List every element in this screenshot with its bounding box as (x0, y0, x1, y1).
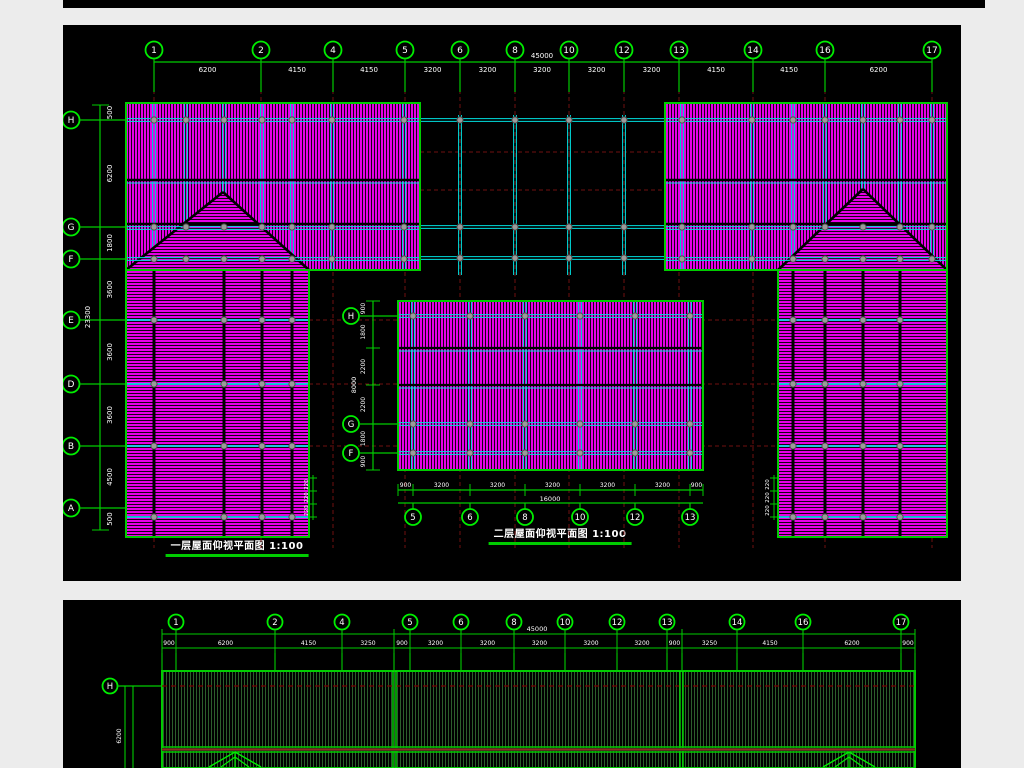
structural-node (457, 117, 463, 123)
structural-node (687, 421, 693, 427)
structural-node (522, 421, 528, 427)
grid-bubble-label: 1 (173, 618, 178, 628)
grid-bubble-mid-12: 12 (627, 509, 643, 525)
dim-label: 6200 (844, 640, 859, 647)
overall-dim-label: 16000 (540, 495, 561, 503)
structural-node (522, 450, 528, 456)
grid-bubble-label: 2 (258, 46, 264, 56)
dim-label: 1800 (360, 431, 367, 446)
grid-bubble-label: 4 (330, 46, 336, 56)
grid-bubble-label: D (68, 380, 75, 390)
structural-node (897, 256, 903, 262)
grid-bubble-mid-F: F (343, 445, 359, 461)
dim-label: 3200 (583, 640, 598, 647)
structural-node (410, 450, 416, 456)
structural-node (289, 443, 295, 449)
dim-label: 3200 (532, 640, 547, 647)
structural-node (929, 117, 935, 123)
structural-node (621, 117, 627, 123)
grid-bubble-label: 2 (272, 618, 277, 628)
grid-bubble-label: 17 (896, 618, 907, 628)
dim-label: 4150 (707, 66, 725, 74)
first-floor-roof-plan-sheet: 一层屋面仰视平面图 1:100 二层屋面仰视平面图 1:100 12456810… (63, 25, 961, 581)
overall-dim-label: 8000 (350, 377, 358, 394)
structural-node (687, 450, 693, 456)
grid-bubble-label: 17 (926, 46, 937, 56)
structural-node (897, 381, 903, 387)
grid-bubble-label: H (348, 312, 354, 322)
structural-node (289, 514, 295, 520)
grid-bubble-label: 8 (511, 618, 516, 628)
structural-node (679, 117, 685, 123)
grid-bubble-label: 12 (618, 46, 629, 56)
grid-bubble-elev-13: 13 (660, 615, 675, 630)
grid-bubble-label: 16 (798, 618, 809, 628)
grid-bubble-6: 6 (452, 42, 469, 59)
grid-bubble-label: A (68, 504, 75, 514)
dim-label: 3200 (588, 66, 606, 74)
grid-bubble-label: 16 (819, 46, 831, 56)
grid-bubble-G: G (63, 219, 80, 236)
structural-node (259, 443, 265, 449)
structural-node (401, 224, 407, 230)
structural-node (512, 117, 518, 123)
structural-node (749, 117, 755, 123)
grid-bubble-4: 4 (325, 42, 342, 59)
structural-node (790, 224, 796, 230)
structural-node (151, 317, 157, 323)
structural-node (790, 256, 796, 262)
structural-node (151, 117, 157, 123)
structural-node (897, 117, 903, 123)
structural-node (897, 224, 903, 230)
structural-node (822, 381, 828, 387)
grid-bubble-mid-H: H (343, 308, 359, 324)
structural-node (860, 317, 866, 323)
grid-bubble-label: H (107, 682, 113, 692)
structural-node (183, 256, 189, 262)
dim-label: 220 (765, 492, 771, 503)
structural-node (151, 443, 157, 449)
grid-bubble-H: H (63, 112, 80, 129)
grid-bubble-label: F (349, 449, 354, 459)
dim-label: 3200 (600, 482, 615, 489)
structural-node (259, 514, 265, 520)
dim-label: 900 (902, 640, 914, 647)
grid-bubble-17: 17 (924, 42, 941, 59)
grid-bubble-elev-14: 14 (730, 615, 745, 630)
grid-bubble-B: B (63, 438, 80, 455)
structural-node (860, 224, 866, 230)
overall-dim-label: 45000 (531, 52, 553, 60)
structural-node (329, 224, 335, 230)
grid-bubble-label: 8 (512, 46, 518, 56)
structural-node (467, 450, 473, 456)
dim-label: 900 (396, 640, 408, 647)
grid-bubble-mid-5: 5 (405, 509, 421, 525)
dim-label: 6200 (199, 66, 217, 74)
structural-node (790, 381, 796, 387)
structural-node (259, 117, 265, 123)
structural-node (822, 256, 828, 262)
structural-node (621, 224, 627, 230)
dim-label: 3200 (643, 66, 661, 74)
overall-dim-label: 45000 (527, 625, 548, 633)
grid-bubble-label: 5 (402, 46, 408, 56)
dim-label: 220 (765, 505, 771, 516)
dim-label: 220 (304, 492, 310, 503)
grid-bubble-13: 13 (671, 42, 688, 59)
grid-bubble-label: 13 (673, 46, 684, 56)
roof-elevation-drawing: 1245681012131416179006200415032509003200… (63, 600, 961, 768)
structural-node (259, 256, 265, 262)
structural-node (860, 256, 866, 262)
cad-drawing-page: { "colors": { "page_bg": "#ececec", "pan… (0, 0, 1024, 768)
grid-bubble-elev-12: 12 (610, 615, 625, 630)
grid-bubble-elev-1: 1 (169, 615, 184, 630)
structural-node (749, 224, 755, 230)
grid-bubble-mid-G: G (343, 416, 359, 432)
grid-bubble-label: G (348, 420, 355, 430)
structural-node (860, 514, 866, 520)
first-floor-roof-plan-drawing: 1245681012131416176200415041503200320032… (63, 25, 961, 581)
grid-bubble-label: 1 (151, 46, 157, 56)
structural-node (151, 256, 157, 262)
dim-label: 3600 (106, 406, 114, 424)
structural-node (822, 317, 828, 323)
grid-bubble-elev-6: 6 (454, 615, 469, 630)
structural-node (467, 313, 473, 319)
structural-node (221, 224, 227, 230)
dim-label: 3200 (545, 482, 560, 489)
structural-node (259, 381, 265, 387)
structural-node (289, 224, 295, 230)
grid-bubble-16: 16 (817, 42, 834, 59)
dim-label: 900 (691, 482, 703, 489)
structural-node (410, 313, 416, 319)
structural-node (401, 256, 407, 262)
structural-node (566, 255, 572, 261)
grid-bubble-10: 10 (561, 42, 578, 59)
dim-label: 220 (304, 505, 310, 516)
structural-node (401, 117, 407, 123)
dim-label: 3600 (106, 281, 114, 299)
structural-node (860, 443, 866, 449)
grid-bubble-elev-4: 4 (335, 615, 350, 630)
dim-label: 900 (163, 640, 175, 647)
dim-label: 3200 (490, 482, 505, 489)
dim-label: 900 (360, 303, 367, 315)
dim-label: 2200 (360, 397, 367, 412)
structural-node (822, 224, 828, 230)
structural-node (632, 313, 638, 319)
structural-node (860, 117, 866, 123)
structural-node (259, 317, 265, 323)
dim-label: 3200 (634, 640, 649, 647)
structural-node (329, 117, 335, 123)
grid-bubble-label: 8 (522, 513, 527, 523)
structural-node (512, 224, 518, 230)
structural-node (221, 317, 227, 323)
grid-bubble-elev-8: 8 (507, 615, 522, 630)
dim-label: 3250 (702, 640, 717, 647)
structural-node (749, 256, 755, 262)
structural-node (457, 224, 463, 230)
overall-dim-label: 23300 (84, 306, 92, 328)
structural-node (183, 117, 189, 123)
dim-label: 4150 (360, 66, 378, 74)
structural-node (929, 224, 935, 230)
sheet-top-border-strip (63, 0, 985, 8)
grid-bubble-12: 12 (616, 42, 633, 59)
structural-node (679, 224, 685, 230)
roof-elevation-sheet: 1245681012131416179006200415032509003200… (63, 600, 961, 768)
dim-label: 3200 (480, 640, 495, 647)
dim-label: 4500 (106, 468, 114, 486)
dim-label: 6200 (218, 640, 233, 647)
grid-bubble-label: 6 (467, 513, 472, 523)
grid-bubble-label: 14 (732, 618, 743, 628)
dim-label: 3200 (434, 482, 449, 489)
structural-node (221, 256, 227, 262)
grid-bubble-mid-8: 8 (517, 509, 533, 525)
grid-bubble-label: 10 (560, 618, 571, 628)
grid-bubble-F: F (63, 251, 80, 268)
grid-bubble-mid-13: 13 (682, 509, 698, 525)
dim-label: 3600 (106, 343, 114, 361)
dim-label: 1800 (360, 324, 367, 339)
grid-bubble-label: 10 (575, 513, 586, 523)
structural-node (621, 255, 627, 261)
dim-label: 900 (400, 482, 412, 489)
grid-bubble-mid-6: 6 (462, 509, 478, 525)
structural-node (860, 381, 866, 387)
grid-bubble-elev-10: 10 (558, 615, 573, 630)
structural-node (566, 117, 572, 123)
structural-node (822, 117, 828, 123)
structural-node (822, 443, 828, 449)
dim-label: 3200 (479, 66, 497, 74)
structural-node (457, 255, 463, 261)
dim-label: 900 (669, 640, 681, 647)
grid-bubble-label: 12 (630, 513, 641, 523)
dim-label: 500 (106, 106, 114, 119)
structural-node (221, 514, 227, 520)
dim-label: 3200 (428, 640, 443, 647)
grid-bubble-5: 5 (397, 42, 414, 59)
structural-node (151, 381, 157, 387)
grid-bubble-E: E (63, 312, 80, 329)
grid-bubble-label: 4 (339, 618, 344, 628)
grid-bubble-label: B (68, 442, 74, 452)
grid-bubble-14: 14 (745, 42, 762, 59)
grid-bubble-mid-10: 10 (572, 509, 588, 525)
dim-label: 3250 (360, 640, 375, 647)
grid-bubble-label: E (68, 316, 74, 326)
grid-bubble-label: 6 (458, 618, 463, 628)
grid-bubble-label: G (68, 223, 75, 233)
structural-node (897, 514, 903, 520)
structural-node (259, 224, 265, 230)
grid-bubble-elev-H: H (103, 679, 118, 694)
dim-label: 4150 (288, 66, 306, 74)
grid-bubble-label: 12 (612, 618, 623, 628)
dim-label: 2200 (360, 359, 367, 374)
grid-bubble-label: 13 (685, 513, 696, 523)
structural-node (577, 421, 583, 427)
dim-label: 220 (304, 479, 310, 490)
structural-node (577, 313, 583, 319)
structural-node (289, 256, 295, 262)
dim-label: 4150 (301, 640, 316, 647)
structural-node (289, 117, 295, 123)
grid-bubble-label: 14 (747, 46, 759, 56)
structural-node (221, 117, 227, 123)
structural-node (632, 421, 638, 427)
dim-label: 1800 (106, 234, 114, 252)
structural-node (151, 224, 157, 230)
structural-node (632, 450, 638, 456)
grid-bubble-label: 13 (662, 618, 673, 628)
grid-bubble-2: 2 (253, 42, 270, 59)
structural-node (289, 381, 295, 387)
grid-bubble-A: A (63, 500, 80, 517)
dim-label: 4150 (762, 640, 777, 647)
structural-node (151, 514, 157, 520)
structural-node (512, 255, 518, 261)
grid-bubble-D: D (63, 376, 80, 393)
dim-label: 3200 (424, 66, 442, 74)
dim-label: 900 (360, 456, 367, 468)
structural-node (687, 313, 693, 319)
structural-node (221, 443, 227, 449)
dim-label: 6200 (116, 728, 123, 743)
grid-bubble-label: 5 (410, 513, 415, 523)
structural-node (577, 450, 583, 456)
structural-node (221, 381, 227, 387)
grid-bubble-1: 1 (146, 42, 163, 59)
structural-node (790, 443, 796, 449)
dim-label: 6200 (870, 66, 888, 74)
structural-node (566, 224, 572, 230)
grid-bubble-label: 5 (407, 618, 412, 628)
structural-node (790, 117, 796, 123)
structural-node (467, 421, 473, 427)
structural-node (822, 514, 828, 520)
dim-label: 3200 (533, 66, 551, 74)
grid-bubble-elev-5: 5 (403, 615, 418, 630)
structural-node (289, 317, 295, 323)
grid-bubble-elev-2: 2 (268, 615, 283, 630)
dim-label: 4150 (780, 66, 798, 74)
structural-node (897, 443, 903, 449)
structural-node (329, 256, 335, 262)
dim-label: 500 (106, 512, 114, 525)
structural-node (522, 313, 528, 319)
structural-node (790, 514, 796, 520)
structural-node (897, 317, 903, 323)
dim-label: 6200 (106, 165, 114, 183)
grid-bubble-elev-16: 16 (796, 615, 811, 630)
grid-bubble-label: F (68, 255, 73, 265)
dim-label: 3200 (655, 482, 670, 489)
grid-bubble-elev-17: 17 (894, 615, 909, 630)
grid-bubble-label: 10 (563, 46, 575, 56)
structural-node (183, 224, 189, 230)
grid-bubble-label: 6 (457, 46, 463, 56)
structural-node (679, 256, 685, 262)
structural-node (929, 256, 935, 262)
structural-node (790, 317, 796, 323)
dim-label: 220 (765, 479, 771, 490)
grid-bubble-8: 8 (507, 42, 524, 59)
grid-bubble-label: H (68, 116, 75, 126)
structural-node (410, 421, 416, 427)
